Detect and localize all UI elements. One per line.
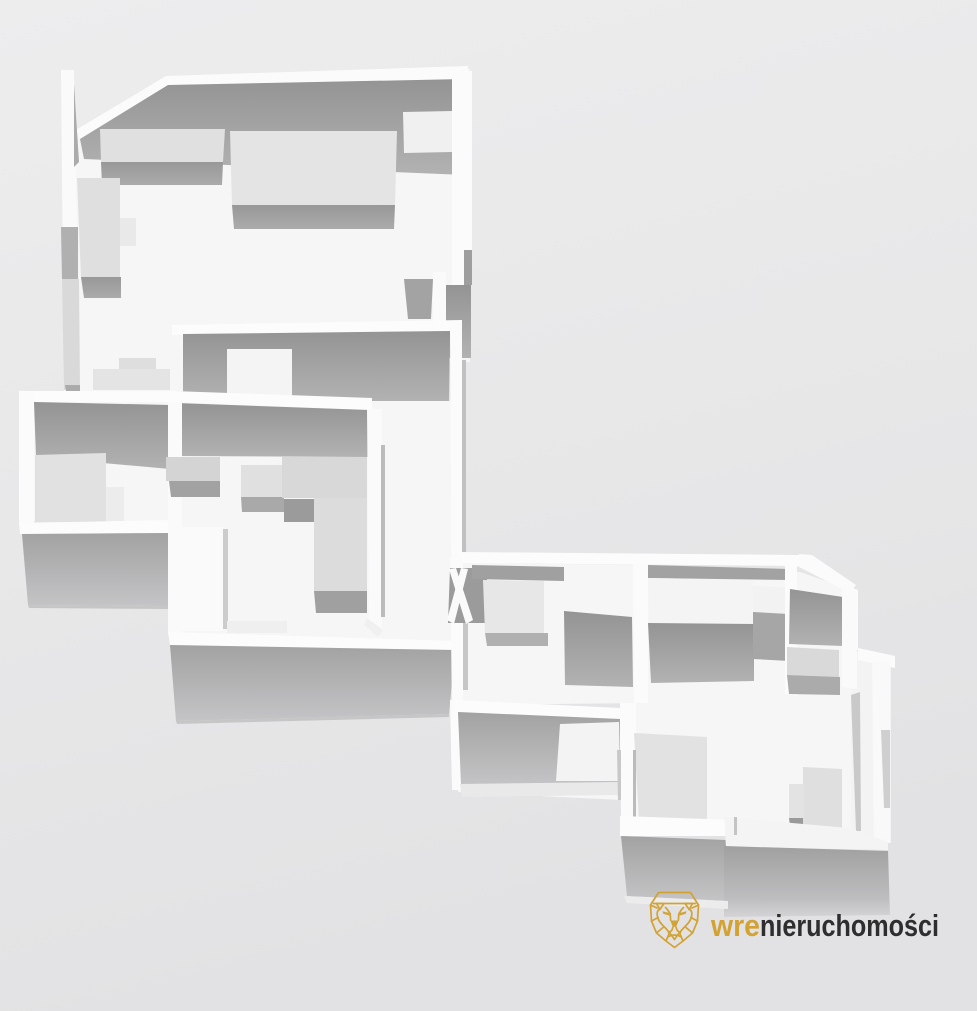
svg-text:nieruchomości: nieruchomości bbox=[760, 908, 939, 943]
svg-text:wre: wre bbox=[710, 908, 760, 943]
